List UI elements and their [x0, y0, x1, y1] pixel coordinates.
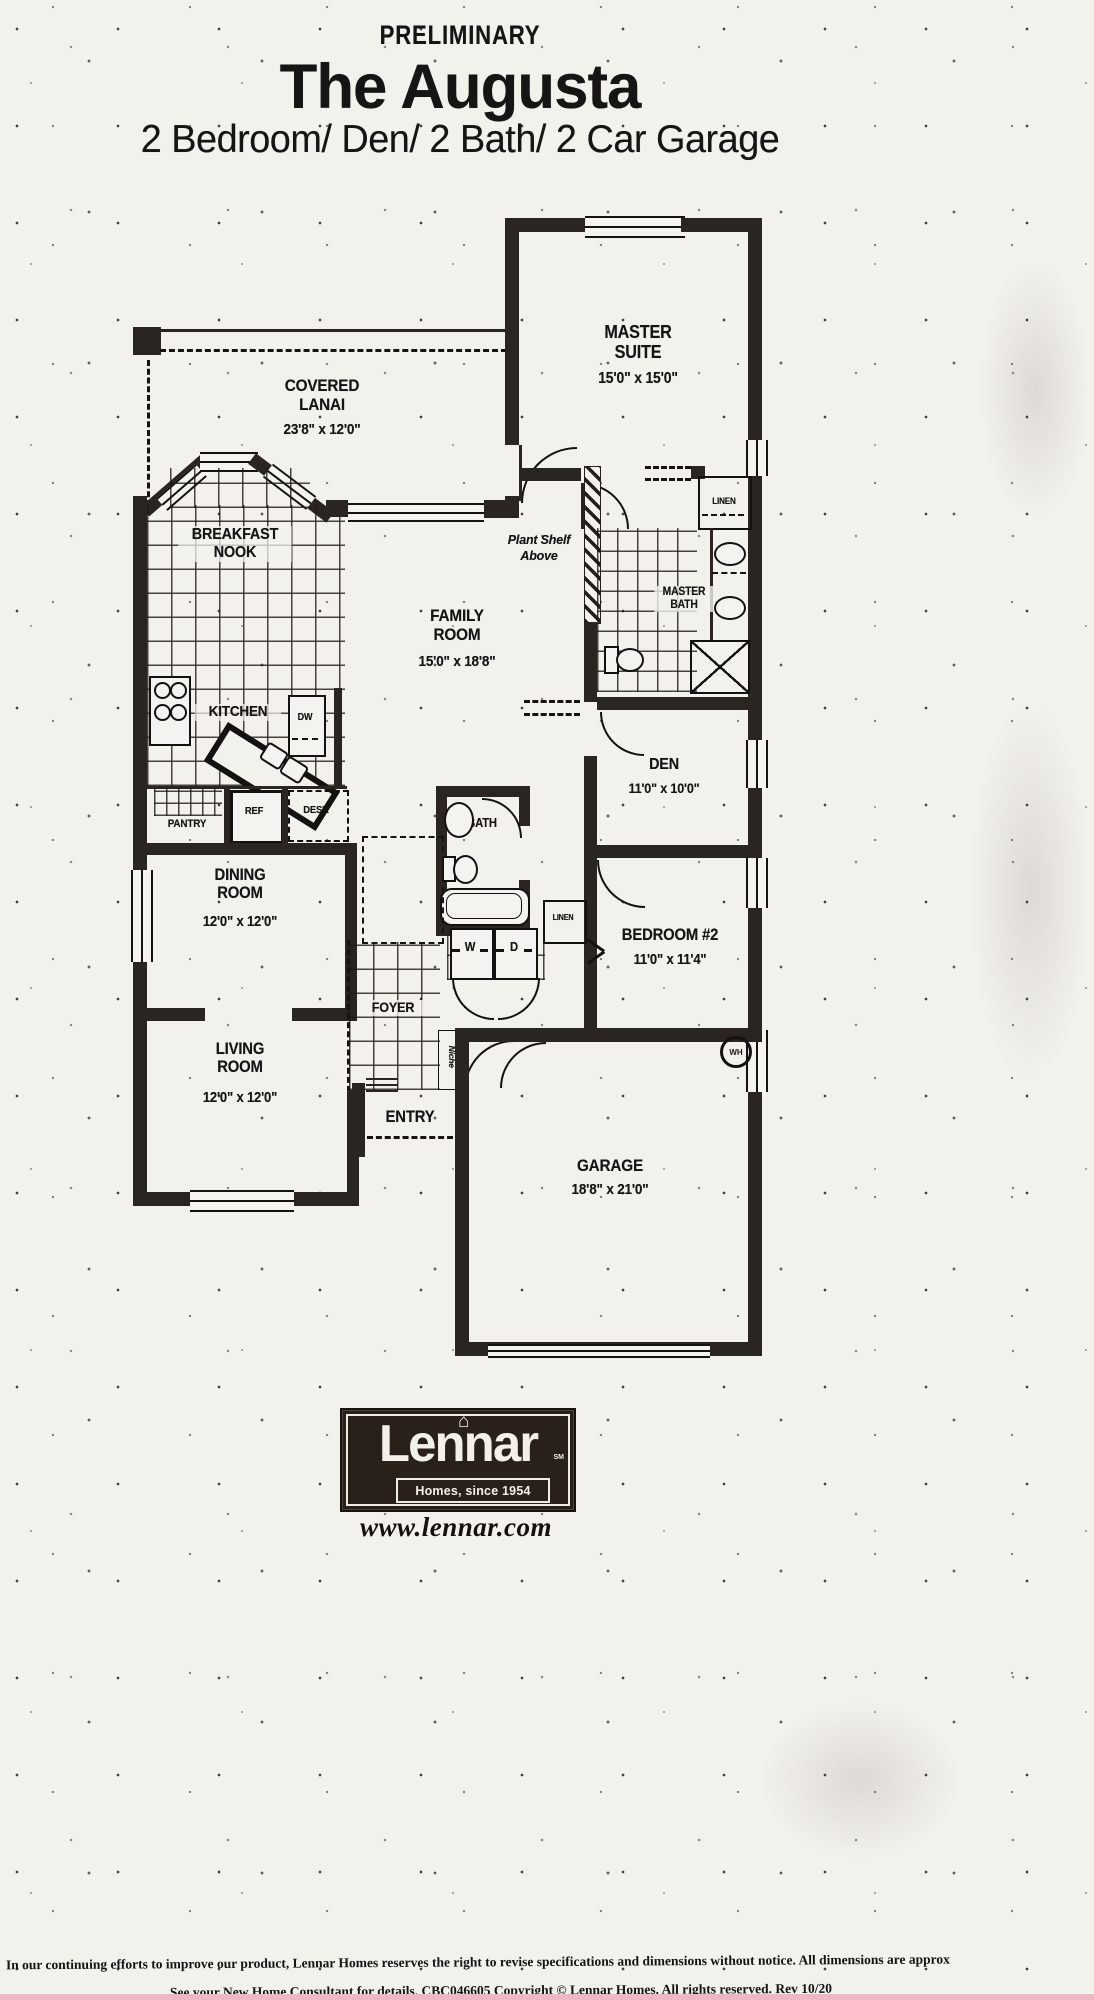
- wall: [326, 500, 348, 517]
- window: [746, 740, 768, 788]
- garage-door: [488, 1344, 710, 1358]
- cased-opening: [645, 466, 691, 469]
- wall: [455, 1028, 469, 1356]
- room-dims: 18'8" x 21'0": [547, 1182, 673, 1199]
- cased-opening: [645, 478, 691, 481]
- logo-brand: Lennar: [344, 1418, 571, 1470]
- wall: [584, 845, 748, 858]
- logo-tagline: Homes, since 1954: [396, 1478, 550, 1503]
- lennar-logo: ⌂ Lennar SM Homes, since 1954: [340, 1408, 576, 1512]
- lanai-dashed-edge: [147, 360, 150, 506]
- vanity-counter: [710, 528, 713, 642]
- wall: [484, 500, 508, 518]
- room-label: DEN: [639, 756, 689, 774]
- room-label: LIVING ROOM: [199, 1040, 282, 1077]
- wall: [584, 622, 597, 702]
- door-arc: [498, 978, 540, 1020]
- wall: [155, 329, 507, 332]
- closet-label: PANTRY: [156, 818, 219, 830]
- page-title: The Augusta: [166, 52, 754, 123]
- pantry-shelving: [154, 788, 222, 816]
- appliance-label: D: [505, 940, 523, 954]
- wall: [436, 786, 530, 797]
- wall: [519, 468, 581, 481]
- plant-ledge-dashed: [362, 836, 444, 944]
- shower: [690, 640, 750, 694]
- scan-smudge: [980, 260, 1090, 520]
- window: [746, 858, 768, 908]
- wall: [147, 1008, 205, 1021]
- sink: [714, 542, 746, 566]
- wall: [133, 496, 147, 870]
- wall: [505, 232, 519, 445]
- tile-floor: [170, 468, 310, 508]
- lanai-dashed-edge: [160, 349, 507, 352]
- step-line: [366, 1090, 398, 1092]
- room-dims: 15'0" x 15'0": [564, 370, 712, 387]
- wall: [469, 1028, 549, 1042]
- logo-servicemark: SM: [554, 1454, 565, 1461]
- scanned-floor-plan-page: PRELIMINARY The Augusta 2 Bedroom/ Den/ …: [0, 0, 1094, 2000]
- preliminary-stamp: PRELIMINARY: [353, 20, 566, 50]
- toilet-bowl: [616, 648, 644, 672]
- water-heater: WH: [720, 1036, 752, 1068]
- burner: [154, 682, 171, 699]
- door-arc: [597, 860, 645, 908]
- sink: [444, 802, 474, 838]
- door-arc: [600, 712, 644, 756]
- window: [190, 1190, 294, 1212]
- porch-dashed-edge: [367, 1136, 453, 1139]
- burner: [170, 682, 187, 699]
- tile-floor: [349, 942, 440, 1090]
- foyer-dashed-edge: [347, 940, 350, 1092]
- wall: [748, 908, 762, 1030]
- website-url: www.lennar.com: [256, 1512, 656, 1543]
- cabinet-dashes: [292, 738, 318, 740]
- room-dims: 11'0" x 10'0": [614, 781, 715, 797]
- scan-smudge: [970, 700, 1090, 1080]
- room-label: GARAGE: [559, 1156, 662, 1175]
- room-label: MASTER SUITE: [598, 322, 679, 362]
- room-label: KITCHEN: [195, 704, 281, 721]
- dishwasher: [288, 695, 326, 757]
- appliance-label: REF: [236, 806, 272, 818]
- appliance-label: W: [461, 940, 479, 954]
- room-dims: 11'0" x 11'4": [614, 952, 726, 968]
- room-label: DINING ROOM: [193, 866, 287, 903]
- window: [585, 216, 685, 238]
- sink: [714, 596, 746, 620]
- wall: [352, 1083, 365, 1157]
- wall: [748, 788, 762, 858]
- wall: [133, 962, 147, 1206]
- burner: [170, 704, 187, 721]
- counter: [334, 688, 342, 788]
- cased-opening: [524, 700, 580, 703]
- page-subtitle: 2 Bedroom/ Den/ 2 Bath/ 2 Car Garage: [72, 118, 848, 162]
- washer: [450, 928, 494, 980]
- wall: [584, 756, 597, 848]
- door-arc: [452, 978, 494, 1020]
- label-dash: [452, 949, 460, 952]
- toilet-bowl: [453, 855, 478, 884]
- room-label: ENTRY: [374, 1108, 446, 1126]
- step-line: [366, 1078, 398, 1080]
- room-dims: 12'0" x 12'0": [182, 1090, 297, 1106]
- closet-label: LINEN: [704, 496, 744, 506]
- wall: [505, 218, 589, 232]
- wall: [147, 843, 357, 855]
- room-label: COVERED LANAI: [272, 376, 373, 414]
- room-label: FOYER: [363, 1000, 422, 1016]
- window: [746, 440, 768, 476]
- dryer: [494, 928, 538, 980]
- window: [131, 870, 153, 962]
- plant-shelf-note: Plant Shelf Above: [504, 532, 574, 565]
- room-dims: 23'8" x 12'0": [254, 422, 391, 439]
- room-label: MASTER BATH: [654, 586, 713, 612]
- wall: [748, 218, 762, 440]
- label-dash: [480, 949, 488, 952]
- wall: [597, 697, 748, 710]
- label-dash: [496, 949, 504, 952]
- water-heater-label: WH: [729, 1048, 742, 1057]
- cased-opening: [524, 713, 580, 716]
- counter-dashes: [712, 572, 746, 574]
- step-line: [366, 1084, 398, 1086]
- shelf-dashes: [702, 514, 744, 516]
- label-dash: [524, 949, 532, 952]
- room-dims: 12'0" x 12'0": [182, 914, 297, 930]
- desk-label: DESK: [294, 805, 337, 817]
- room-dims: 15'0" x 18'8": [402, 654, 512, 671]
- wall: [519, 786, 530, 826]
- scanner-edge-line: [0, 1994, 1094, 2000]
- room-label: FAMILY ROOM: [414, 606, 500, 644]
- wall: [748, 1092, 762, 1356]
- sliding-door: [348, 503, 484, 522]
- room-label: BEDROOM #2: [598, 926, 742, 944]
- burner: [154, 704, 171, 721]
- bathtub-inner: [446, 893, 522, 919]
- room-label: BREAKFAST NOOK: [178, 526, 291, 562]
- closet-label: LINEN: [548, 914, 579, 923]
- disclaimer-line-1: In our continuing efforts to improve our…: [6, 1951, 1092, 1974]
- scan-smudge: [760, 1700, 960, 1860]
- appliance-label: DW: [294, 712, 316, 723]
